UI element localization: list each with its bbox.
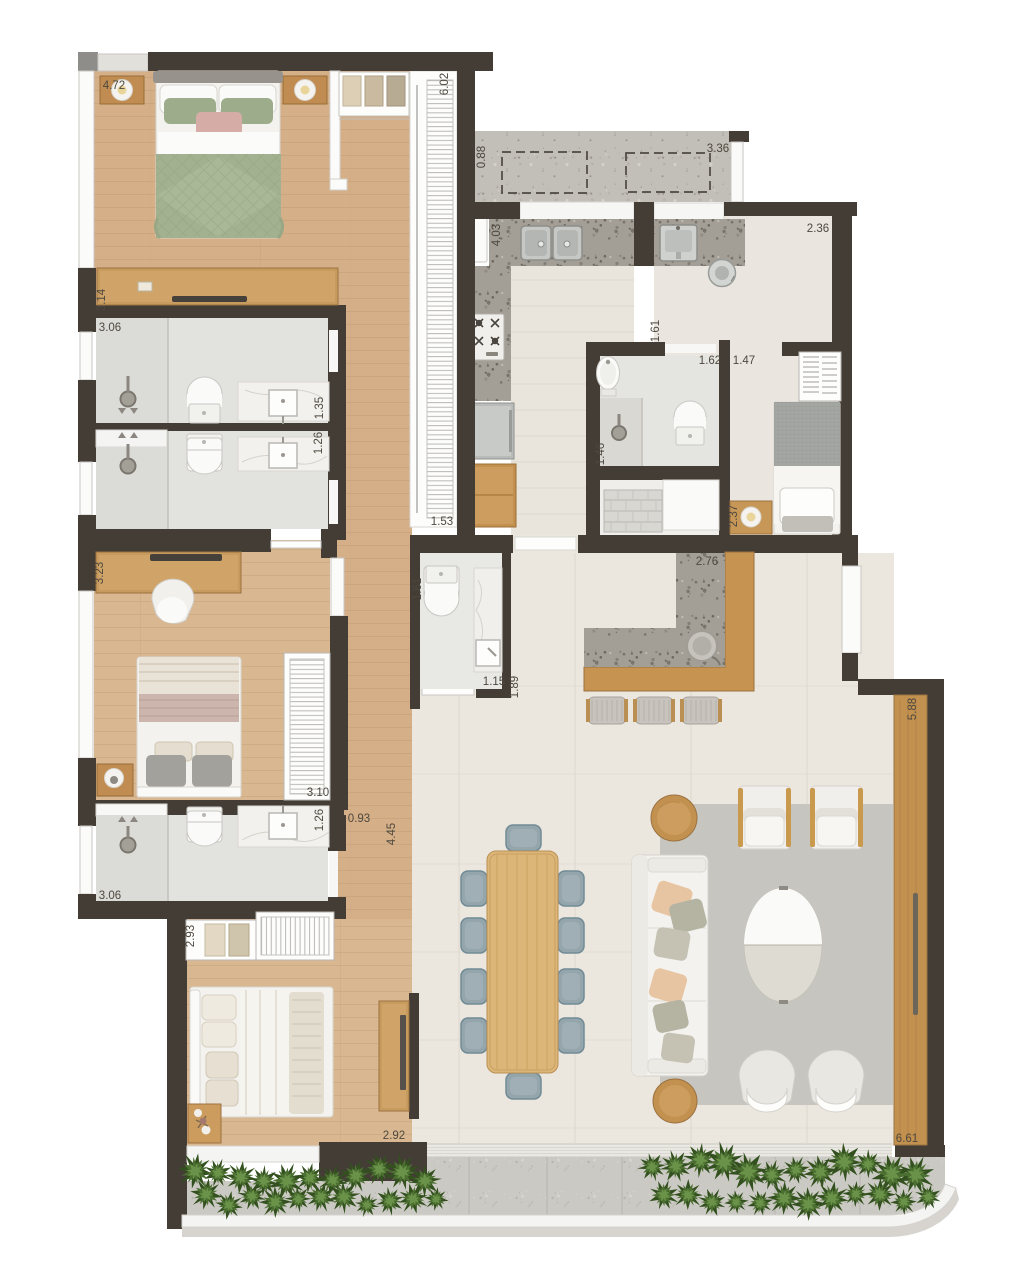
svg-text:6.61: 6.61 <box>896 1133 918 1145</box>
svg-text:4.72: 4.72 <box>103 80 125 92</box>
svg-text:4.45: 4.45 <box>386 823 398 845</box>
svg-text:6.02: 6.02 <box>439 73 451 95</box>
svg-text:3.10: 3.10 <box>307 787 329 799</box>
svg-text:2.76: 2.76 <box>696 556 718 568</box>
svg-text:1.46: 1.46 <box>595 443 607 465</box>
svg-text:1.61: 1.61 <box>412 578 424 600</box>
svg-text:3.06: 3.06 <box>99 322 121 334</box>
svg-text:1.26: 1.26 <box>314 809 326 831</box>
svg-text:1.47: 1.47 <box>733 355 755 367</box>
svg-text:3.23: 3.23 <box>94 562 106 584</box>
svg-text:3.36: 3.36 <box>707 143 729 155</box>
svg-text:2.36: 2.36 <box>807 223 829 235</box>
svg-text:0.93: 0.93 <box>348 813 370 825</box>
svg-text:5.88: 5.88 <box>907 698 919 720</box>
svg-text:1.26: 1.26 <box>313 432 325 454</box>
svg-text:2.92: 2.92 <box>383 1130 405 1142</box>
svg-text:1.35: 1.35 <box>314 397 326 419</box>
svg-text:2.93: 2.93 <box>185 925 197 947</box>
svg-text:1.61: 1.61 <box>650 320 662 342</box>
svg-text:1.62: 1.62 <box>699 355 721 367</box>
svg-text:3.14: 3.14 <box>96 288 108 311</box>
svg-text:1.53: 1.53 <box>431 516 453 528</box>
svg-text:0.88: 0.88 <box>476 146 488 168</box>
svg-text:3.06: 3.06 <box>99 890 121 902</box>
svg-text:4.03: 4.03 <box>491 224 503 246</box>
svg-text:1.15: 1.15 <box>483 676 505 688</box>
svg-text:2.37: 2.37 <box>728 505 740 527</box>
svg-text:1.89: 1.89 <box>509 676 521 698</box>
